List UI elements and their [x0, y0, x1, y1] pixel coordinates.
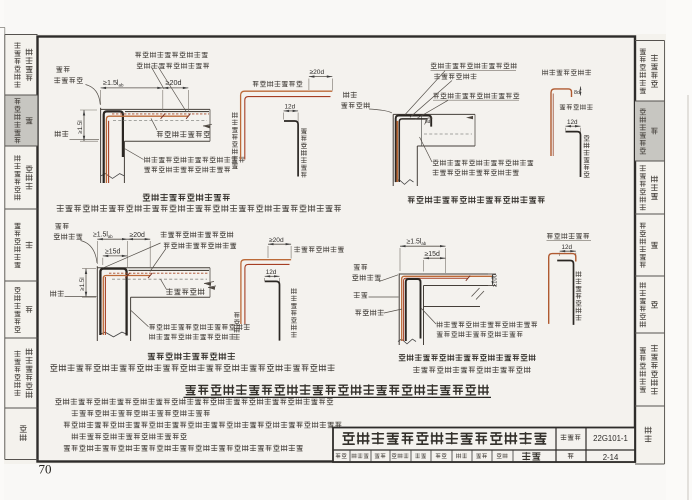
svg-text:≥100: ≥100	[493, 274, 499, 287]
svg-text:≥15d: ≥15d	[105, 248, 120, 255]
svg-text:8d: 8d	[574, 90, 580, 96]
svg-text:70: 70	[39, 462, 52, 477]
svg-text:12d: 12d	[266, 269, 277, 276]
svg-text:12d: 12d	[562, 244, 573, 251]
svg-text:12d: 12d	[567, 119, 578, 126]
svg-text:≥20d: ≥20d	[269, 237, 284, 244]
svg-text:2-14: 2-14	[603, 453, 619, 462]
svg-text:≥20d: ≥20d	[310, 69, 325, 76]
svg-text:≥15d: ≥15d	[425, 251, 440, 258]
svg-text:22G101-1: 22G101-1	[593, 434, 628, 443]
svg-text:12d: 12d	[285, 103, 296, 110]
svg-text:8d: 8d	[425, 119, 431, 125]
svg-text:≥20d: ≥20d	[130, 232, 145, 239]
svg-text:≥1.5l: ≥1.5l	[79, 277, 86, 290]
svg-text:≥1.5l: ≥1.5l	[77, 120, 84, 133]
